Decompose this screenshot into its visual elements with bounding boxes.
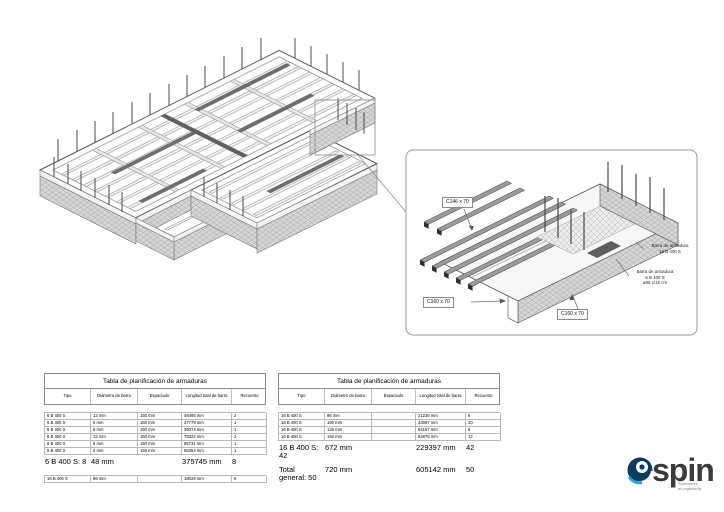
table-summary-row: 16 B 400 S: 42 672 mm 229397 mm 42 <box>278 441 500 463</box>
cell: 192 mm <box>325 434 372 441</box>
total-diameter: 720 mm <box>324 466 371 482</box>
cell: 1 <box>232 427 267 434</box>
summary-diameter: 48 mm <box>90 458 137 472</box>
table-row: 16 B 400 S96 mm21236 mm6 <box>278 413 500 420</box>
table-row: 16 B 400 S96 mm18029 mm6 <box>44 476 266 483</box>
cell: 150 mm <box>138 441 182 448</box>
table-row: 16 B 400 S128 mm54157 mm8 <box>278 427 500 434</box>
cell: 18029 mm <box>182 476 232 483</box>
table-row: 6 B 400 S6 mm150 mm85731 mm1 <box>44 441 266 448</box>
note-line: 16 B 400 S <box>643 249 697 255</box>
summary-diameter: 672 mm <box>324 444 371 460</box>
table-row: 6 B 400 S6 mm150 mm86353 mm1 <box>44 448 266 455</box>
cell: 86353 mm <box>182 448 232 455</box>
total-length: 605142 mm <box>415 466 465 482</box>
total-label: Total general: 50 <box>278 466 324 482</box>
table-summary-row: 6 B 400 S: 8 48 mm 375745 mm 8 <box>44 455 266 475</box>
cell: 43097 mm <box>416 420 466 427</box>
cell: 6 mm <box>91 441 138 448</box>
cell: 150 mm <box>138 420 182 427</box>
summary-count: 42 <box>465 444 500 460</box>
cell: 6 mm <box>91 448 138 455</box>
col-header: Tipo <box>279 389 325 404</box>
cell: 6 B 400 S <box>45 448 91 455</box>
note-rebar-16: Barra de armadura 16 B 400 S <box>643 243 697 254</box>
cell: 1 <box>232 420 267 427</box>
cell: 16 B 400 S <box>279 413 325 420</box>
main-isometric-view <box>40 38 441 260</box>
cell: 150 mm <box>138 448 182 455</box>
cell: 128 mm <box>325 427 372 434</box>
table-header-row: Tipo Diámetro de barra Espaciado Longitu… <box>44 389 266 405</box>
spin-logo-tagline: Soluciones en ingeniería <box>678 481 701 491</box>
cell: 39074 mm <box>182 427 232 434</box>
col-header: Recuento <box>466 389 501 404</box>
table-header-row: Tipo Diámetro de barra Espaciado Longitu… <box>278 389 500 405</box>
rebar-schedule-right: Tabla de planificación de armaduras Tipo… <box>278 373 500 485</box>
cell: 8 <box>466 427 501 434</box>
cell: 85731 mm <box>182 441 232 448</box>
cell: 6 B 400 S <box>45 441 91 448</box>
cell: 1 <box>232 441 267 448</box>
cell: 16 B 400 S <box>45 476 91 483</box>
cell: 12 mm <box>91 434 138 441</box>
summary-length: 375745 mm <box>181 458 231 472</box>
cell: 150 mm <box>138 427 182 434</box>
cell: 6 <box>232 476 267 483</box>
tag-c160x70-bottom: C160 x 70 <box>557 309 588 320</box>
table-total-row: Total general: 50 720 mm 605142 mm 50 <box>278 463 500 485</box>
table-row: 6 B 400 S6 mm150 mm39074 mm1 <box>44 427 266 434</box>
cell: 10 <box>466 420 501 427</box>
cell <box>372 413 416 420</box>
col-header: Espaciado <box>138 389 182 404</box>
cell: 54157 mm <box>416 427 466 434</box>
col-header: Longitud total de barra <box>416 389 466 404</box>
note-rebar-6: Barra de armadura 6 B 400 S ø06 c/15 cm <box>626 269 684 286</box>
tag-c160x70-left: C160 x 70 <box>423 297 454 308</box>
rebar-schedule-left: Tabla de planificación de armaduras Tipo… <box>44 373 266 483</box>
table-row: 16 B 400 S192 mm92876 mm12 <box>278 434 500 441</box>
cell: 6 <box>466 413 501 420</box>
summary-length: 229397 mm <box>415 444 465 460</box>
table-row: 6 B 400 S12 mm150 mm48485 mm2 <box>44 413 266 420</box>
table-body: 6 B 400 S12 mm150 mm48485 mm2 6 B 400 S6… <box>44 412 266 455</box>
summary-label: 6 B 400 S: 8 <box>44 458 90 472</box>
cell: 16 B 400 S <box>279 434 325 441</box>
cell <box>138 476 182 483</box>
cell: 96 mm <box>325 413 372 420</box>
cell: 6 B 400 S <box>45 413 91 420</box>
cell: 160 mm <box>325 420 372 427</box>
detail-beam-end-cap <box>508 296 518 323</box>
cell: 2 <box>232 434 267 441</box>
cell: 92876 mm <box>416 434 466 441</box>
cell: 96 mm <box>91 476 138 483</box>
table-body-extra: 16 B 400 S96 mm18029 mm6 <box>44 475 266 483</box>
tagline-line: en ingeniería <box>678 486 701 491</box>
cell: 48485 mm <box>182 413 232 420</box>
cell: 6 B 400 S <box>45 420 91 427</box>
cell <box>372 434 416 441</box>
cell <box>372 427 416 434</box>
table-title: Tabla de planificación de armaduras <box>278 373 500 389</box>
col-header: Diámetro de barra <box>325 389 372 404</box>
cell: 150 mm <box>138 434 182 441</box>
col-header: Espaciado <box>372 389 416 404</box>
summary-label: 16 B 400 S: 42 <box>278 444 324 460</box>
table-row: 6 B 400 S12 mm150 mm78322 mm2 <box>44 434 266 441</box>
cell: 12 mm <box>91 413 138 420</box>
col-header: Longitud total de barra <box>182 389 232 404</box>
cell: 6 B 400 S <box>45 427 91 434</box>
cell: 6 mm <box>91 420 138 427</box>
cell: 6 B 400 S <box>45 434 91 441</box>
cell: 37779 mm <box>182 420 232 427</box>
cell: 16 B 400 S <box>279 427 325 434</box>
cell: 12 <box>466 434 501 441</box>
table-title: Tabla de planificación de armaduras <box>44 373 266 389</box>
cell: 2 <box>232 413 267 420</box>
cell: 78322 mm <box>182 434 232 441</box>
cell: 6 mm <box>91 427 138 434</box>
tag-c146x70: C146 x 70 <box>442 197 473 208</box>
table-row: 6 B 400 S6 mm150 mm37779 mm1 <box>44 420 266 427</box>
total-count: 50 <box>465 466 500 482</box>
table-body: 16 B 400 S96 mm21236 mm6 16 B 400 S160 m… <box>278 412 500 441</box>
cell: 150 mm <box>138 413 182 420</box>
table-row: 16 B 400 S160 mm43097 mm10 <box>278 420 500 427</box>
cell: 21236 mm <box>416 413 466 420</box>
cell: 1 <box>232 448 267 455</box>
cell: 16 B 400 S <box>279 420 325 427</box>
cell <box>372 420 416 427</box>
col-header: Diámetro de barra <box>91 389 138 404</box>
note-line: ø06 c/15 cm <box>626 280 684 286</box>
col-header: Recuento <box>232 389 267 404</box>
col-header: Tipo <box>45 389 91 404</box>
spin-logo-icon <box>628 458 653 483</box>
summary-count: 8 <box>231 458 266 472</box>
